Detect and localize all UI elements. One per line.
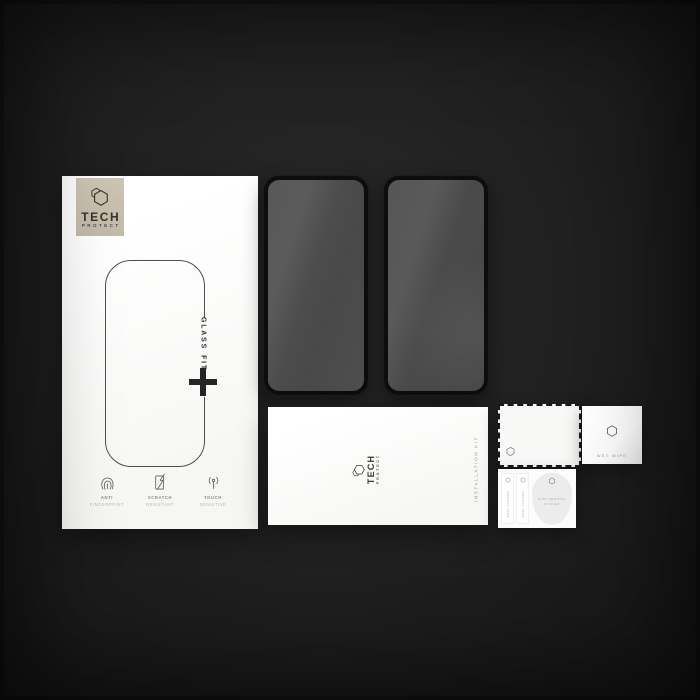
hexagon-logo-icon (89, 186, 111, 208)
hexagon-logo-icon (351, 463, 366, 478)
feature-label-line1: SCRATCH (148, 495, 172, 500)
brand-name: TECH (367, 455, 376, 486)
feature-label-line2: FINGERPRINT (90, 502, 124, 507)
touch-icon (203, 472, 224, 493)
plus-icon (189, 368, 217, 396)
feature-scratch-resistant: SCRATCH RESISTANT (137, 472, 183, 507)
glass-surface (388, 180, 484, 391)
installation-kit-box: TECH PROTECT INSTALLATION KIT (268, 407, 488, 525)
dust-removal-label-line1: DUST REMOVAL (538, 497, 566, 501)
feature-anti-fingerprint: ANTI FINGERPRINT (84, 472, 130, 507)
hexagon-icon (505, 477, 511, 483)
retail-box: TECH PROTECT GLASS FIT ANTI FINGERPRINT … (62, 176, 258, 529)
microfiber-cloth (498, 404, 581, 467)
brand-name: TECH (80, 211, 121, 223)
wet-wipe-packet: WET WIPE (582, 406, 642, 464)
easy-sticker-strip: EASY STICKER (502, 474, 513, 523)
easy-sticker-label: EASY STICKER (521, 491, 525, 517)
feature-icons-row: ANTI FINGERPRINT SCRATCH RESISTANT TOUCH… (84, 472, 236, 507)
tempered-glass-panel-1 (264, 176, 368, 395)
tempered-glass-panel-2 (384, 176, 488, 395)
feature-label-line1: ANTI (101, 495, 113, 500)
hexagon-icon (605, 424, 619, 438)
glass-word: GLASS (200, 317, 207, 350)
scratch-icon (150, 472, 171, 493)
brand-subname: PROTECT (79, 224, 120, 229)
phone-outline-drawing (105, 260, 205, 467)
easy-sticker-label: EASY STICKER (506, 491, 510, 517)
hexagon-icon (548, 477, 556, 485)
glass-fit-label: GLASS FIT (200, 317, 207, 371)
dust-removal-sticker: DUST REMOVAL STICKER (532, 473, 572, 525)
feature-label-line2: SENSITIVE (200, 502, 226, 507)
wet-wipe-label: WET WIPE (582, 453, 642, 458)
installation-kit-label: INSTALLATION KIT (474, 436, 479, 502)
brand-logo-square: TECH PROTECT (76, 178, 124, 236)
brand-subname: PROTECT (377, 454, 381, 486)
feature-label-line1: TOUCH (204, 495, 222, 500)
easy-sticker-strip: EASY STICKER (517, 474, 528, 523)
hexagon-icon (520, 477, 526, 483)
fingerprint-icon (97, 472, 118, 493)
hexagon-icon (505, 446, 516, 457)
feature-label-line2: RESISTANT (146, 502, 174, 507)
feature-touch-sensitive: TOUCH SENSITIVE (190, 472, 236, 507)
dust-sticker-card: EASY STICKER EASY STICKER DUST REMOVAL S… (498, 469, 576, 528)
dust-removal-label-line2: STICKER (544, 502, 560, 506)
glass-surface (268, 180, 364, 391)
kit-brand-logo: TECH PROTECT (351, 454, 381, 486)
